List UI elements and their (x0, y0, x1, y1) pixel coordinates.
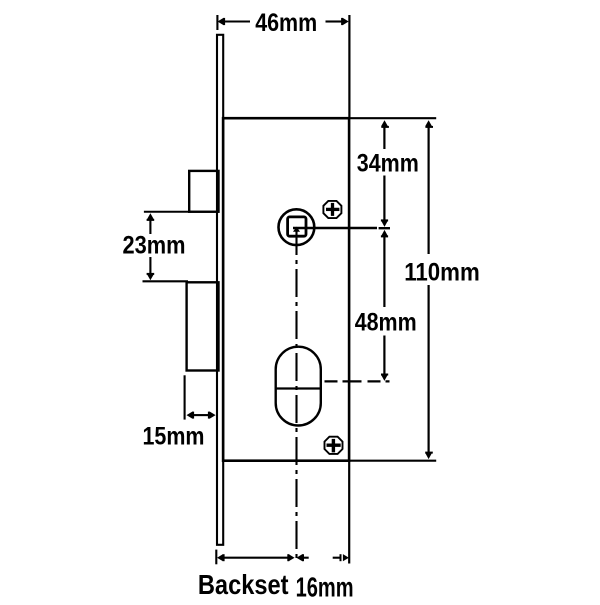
svg-text:Backset: Backset (198, 569, 289, 600)
svg-text:48mm: 48mm (355, 309, 417, 337)
svg-text:15mm: 15mm (143, 423, 205, 451)
svg-text:46mm: 46mm (255, 9, 317, 37)
svg-text:110mm: 110mm (404, 259, 480, 287)
svg-text:16mm: 16mm (296, 572, 354, 601)
svg-text:34mm: 34mm (357, 150, 419, 178)
svg-text:23mm: 23mm (123, 232, 186, 260)
